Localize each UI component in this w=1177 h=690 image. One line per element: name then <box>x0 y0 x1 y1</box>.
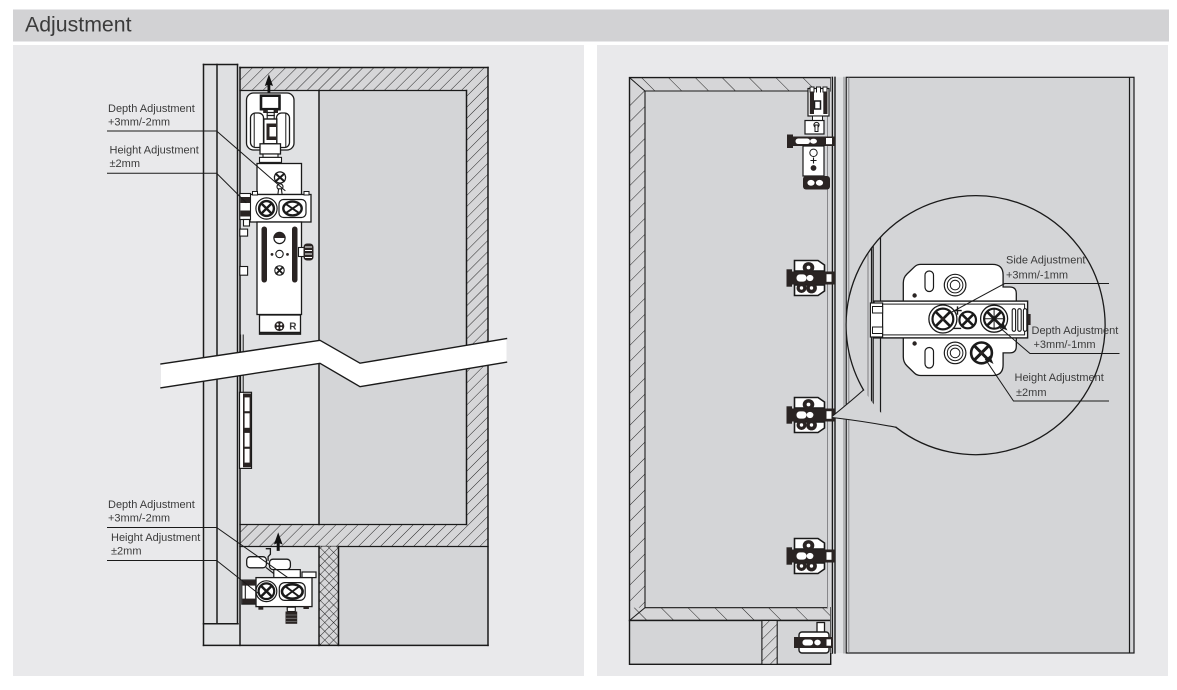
svg-text:Depth Adjustment: Depth Adjustment <box>108 499 195 511</box>
svg-text:Height Adjustment: Height Adjustment <box>110 145 199 157</box>
svg-text:+3mm/-2mm: +3mm/-2mm <box>108 513 170 525</box>
svg-text:Depth Adjustment: Depth Adjustment <box>108 103 195 115</box>
svg-text:+3mm/-1mm: +3mm/-1mm <box>1034 339 1096 351</box>
svg-text:±2mm: ±2mm <box>110 158 140 170</box>
svg-text:+3mm/-1mm: +3mm/-1mm <box>1006 270 1068 282</box>
svg-text:R: R <box>289 322 297 333</box>
svg-text:±2mm: ±2mm <box>1016 387 1046 399</box>
svg-text:Depth Adjustment: Depth Adjustment <box>1032 325 1119 337</box>
svg-text:Side Adjustment: Side Adjustment <box>1006 254 1086 266</box>
svg-text:Height Adjustment: Height Adjustment <box>111 532 200 544</box>
svg-text:±2mm: ±2mm <box>111 546 141 558</box>
svg-text:Height Adjustment: Height Adjustment <box>1015 372 1104 384</box>
svg-text:Adjustment: Adjustment <box>25 13 132 37</box>
svg-text:+3mm/-2mm: +3mm/-2mm <box>108 117 170 129</box>
